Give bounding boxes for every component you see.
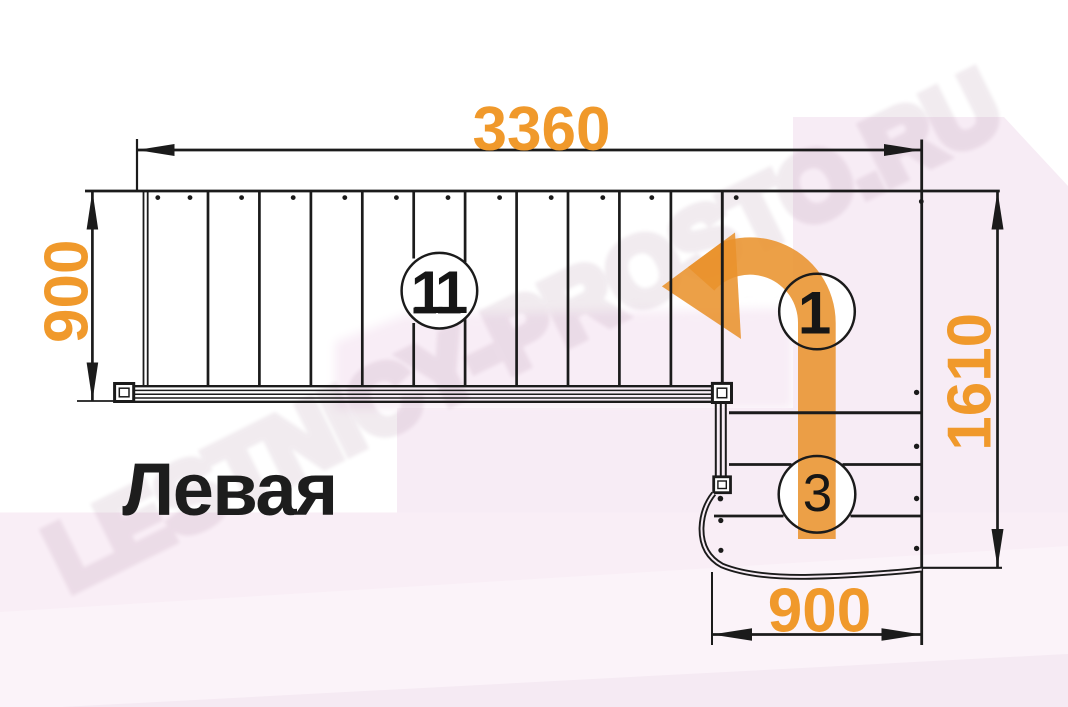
svg-text:11: 11 <box>411 259 467 326</box>
svg-text:900: 900 <box>33 240 102 343</box>
svg-text:Левая: Левая <box>122 448 336 531</box>
svg-text:1610: 1610 <box>936 313 1005 451</box>
svg-text:900: 900 <box>768 577 871 646</box>
svg-text:3360: 3360 <box>473 95 611 164</box>
svg-text:3: 3 <box>803 464 832 523</box>
svg-text:1: 1 <box>798 280 831 347</box>
